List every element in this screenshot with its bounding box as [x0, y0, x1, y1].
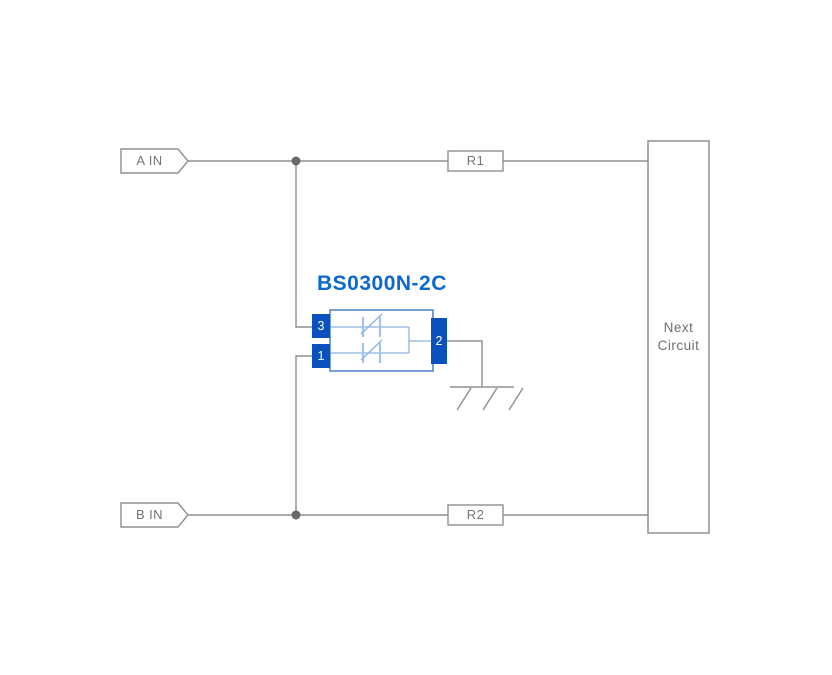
component-part-number: BS0300N-2C	[317, 272, 447, 296]
ground-hatch-2	[483, 388, 497, 410]
resistor-label-r2: R2	[448, 505, 503, 525]
pin-number-2: 2	[431, 318, 447, 364]
next-circuit-label: Next Circuit	[648, 319, 709, 355]
pin-number-1: 1	[312, 344, 330, 368]
ground-hatch-1	[457, 388, 471, 410]
circuit-diagram: A IN B IN R1 R2 BS0300N-2C Next Circuit …	[0, 0, 832, 675]
input-label-a-in: A IN	[121, 149, 178, 173]
resistor-label-r1: R1	[448, 151, 503, 171]
next-circuit-line2: Circuit	[648, 337, 709, 355]
junction-dot-a	[292, 157, 301, 166]
wire-pin1-to-junction-b	[296, 356, 313, 515]
ground-hatch-3	[509, 388, 523, 410]
input-label-b-in: B IN	[121, 503, 178, 527]
next-circuit-line1: Next	[648, 319, 709, 337]
junction-dot-b	[292, 511, 301, 520]
pin-number-3: 3	[312, 314, 330, 338]
wire-junction-a-to-pin3	[296, 161, 313, 327]
wire-pin2-to-ground	[447, 341, 482, 387]
